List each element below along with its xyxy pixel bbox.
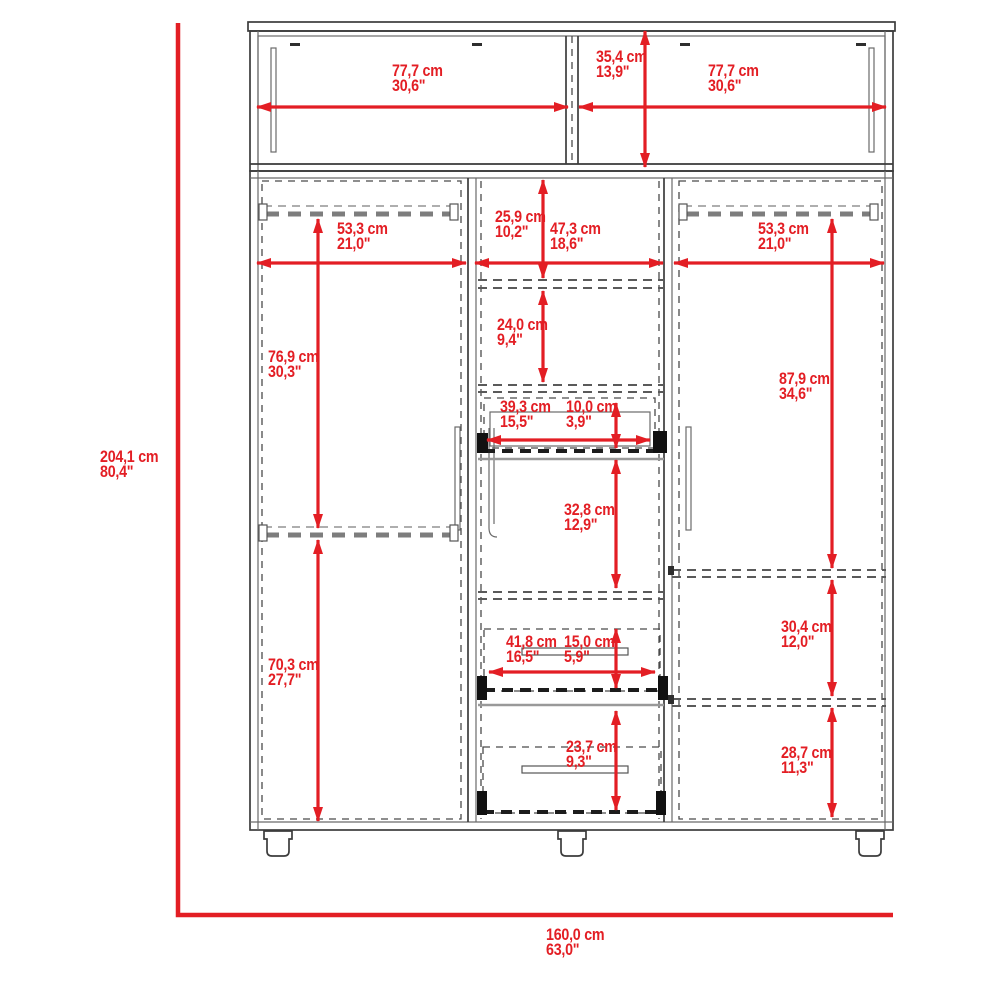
dim-label-right-mid-height: 30,4 cm 12,0" bbox=[781, 620, 832, 649]
foot-left bbox=[264, 831, 292, 856]
tray-slide-hardware bbox=[653, 431, 667, 453]
dim-label-right-width: 53,3 cm 21,0" bbox=[758, 222, 809, 251]
drawer-slide-hardware bbox=[656, 791, 666, 815]
rod-bracket bbox=[450, 525, 458, 541]
overall-dimension-bracket bbox=[178, 23, 893, 915]
feet bbox=[264, 831, 884, 856]
hutch-crown-board bbox=[248, 22, 895, 31]
diagram-canvas bbox=[0, 0, 1000, 1000]
dim-label-center-shelf-gap: 24,0 cm 9,4" bbox=[497, 318, 548, 347]
dim-label-overall-height: 204,1 cm 80,4" bbox=[100, 450, 158, 479]
drawer-slide-hardware bbox=[658, 676, 668, 700]
rod-bracket bbox=[259, 525, 267, 541]
cam-lock-mark bbox=[680, 43, 690, 46]
foot-center bbox=[558, 831, 586, 856]
dim-label-overall-width: 160,0 cm 63,0" bbox=[546, 928, 604, 957]
hutch-left-door-handle bbox=[271, 48, 276, 152]
cam-lock-mark bbox=[290, 43, 300, 46]
rod-bracket bbox=[679, 204, 687, 220]
hutch-outline bbox=[248, 22, 895, 171]
drawer-slide-hardware bbox=[477, 791, 487, 815]
rod-bracket bbox=[259, 204, 267, 220]
rod-bracket bbox=[870, 204, 878, 220]
cam-lock-mark bbox=[472, 43, 482, 46]
dim-label-center-mid-height: 32,8 cm 12,9" bbox=[564, 503, 615, 532]
right-door-outline bbox=[679, 181, 882, 819]
dim-label-right-upper-height: 87,9 cm 34,6" bbox=[779, 372, 830, 401]
left-door-outline bbox=[262, 181, 461, 819]
dim-label-center-top-gap: 25,9 cm 10,2" bbox=[495, 210, 546, 239]
dim-label-tray-height: 10,0 cm 3,9" bbox=[566, 400, 617, 429]
rod-bracket bbox=[450, 204, 458, 220]
left-door-handle bbox=[455, 427, 460, 530]
dim-label-left-width: 53,3 cm 21,0" bbox=[337, 222, 388, 251]
tray-slide-hardware bbox=[477, 433, 488, 453]
foot-right bbox=[856, 831, 884, 856]
shelf-pin-mark bbox=[668, 566, 674, 575]
hutch-right-door-handle bbox=[869, 48, 874, 152]
dim-label-hutch-right-width: 77,7 cm 30,6" bbox=[708, 64, 759, 93]
dim-label-center-width: 47,3 cm 18,6" bbox=[550, 222, 601, 251]
wardrobe-dimension-diagram: 204,1 cm 80,4" 160,0 cm 63,0" 77,7 cm 30… bbox=[0, 0, 1000, 1000]
dim-label-tray-width: 39,3 cm 15,5" bbox=[500, 400, 551, 429]
dim-label-hutch-left-width: 77,7 cm 30,6" bbox=[392, 64, 443, 93]
shelf-pin-mark bbox=[668, 695, 674, 704]
right-shelves bbox=[668, 566, 886, 706]
dim-label-bottom-drawer-height: 23,7 cm 9,3" bbox=[566, 740, 617, 769]
drawer-slide-hardware bbox=[477, 676, 487, 700]
dim-label-left-upper-height: 76,9 cm 30,3" bbox=[268, 350, 319, 379]
dim-label-drawer-width: 41,8 cm 16,5" bbox=[506, 635, 557, 664]
cam-lock-mark bbox=[856, 43, 866, 46]
dim-label-drawer-height: 15,0 cm 5,9" bbox=[564, 635, 615, 664]
dim-label-right-lower-height: 28,7 cm 11,3" bbox=[781, 746, 832, 775]
dim-label-hutch-height: 35,4 cm 13,9" bbox=[596, 50, 647, 79]
right-door-handle bbox=[686, 427, 691, 530]
dim-label-left-lower-height: 70,3 cm 27,7" bbox=[268, 658, 319, 687]
